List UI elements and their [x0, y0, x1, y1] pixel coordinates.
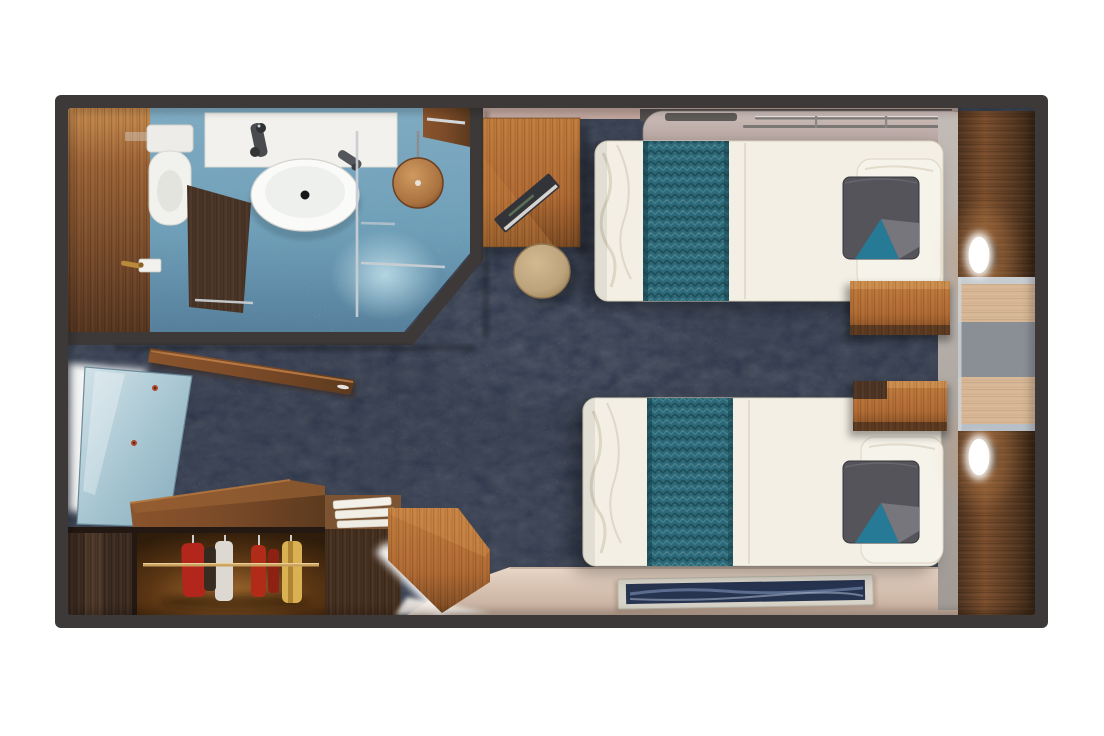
- stool: [514, 244, 570, 298]
- bed-runner-bottom: [647, 398, 733, 566]
- headboard-wall: [951, 111, 1035, 615]
- accent-pillow-bottom: [843, 461, 919, 543]
- bathroom-zone: [62, 102, 489, 351]
- stateroom-floorplan: [55, 95, 1048, 628]
- wardrobe: [137, 533, 325, 615]
- vanity-unit: [958, 277, 1035, 447]
- nightstand-bottom: [849, 381, 949, 437]
- nightstand-top: [845, 281, 951, 341]
- sink-drain: [301, 191, 310, 200]
- wall-art: [615, 575, 877, 613]
- toilet: [147, 125, 193, 225]
- accent-pillow-top: [843, 177, 919, 259]
- bed-runner-top: [643, 141, 729, 301]
- writing-desk: [483, 118, 580, 247]
- wardrobe-cabinet-left: [68, 533, 132, 615]
